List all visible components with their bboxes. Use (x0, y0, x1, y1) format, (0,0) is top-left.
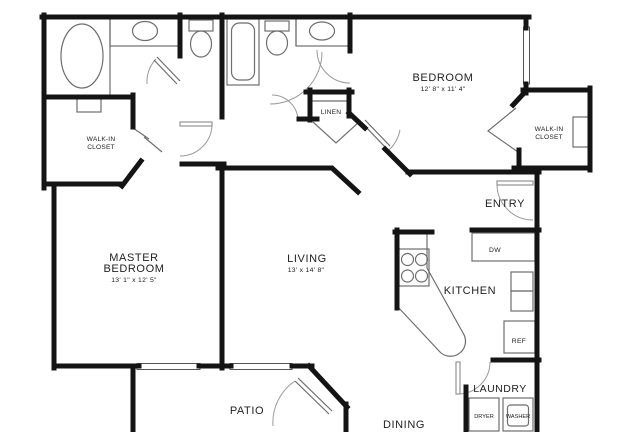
master-bath-door-arc (147, 59, 156, 84)
bathroom-fixtures (61, 17, 350, 95)
entry-label: ENTRY (485, 198, 525, 210)
living-label: LIVING (287, 253, 327, 265)
bedroom-door-panel (362, 120, 390, 149)
bedroom-dims: 12' 8" x 11' 4" (420, 86, 465, 93)
patio-window (137, 364, 200, 370)
master-bedroom-door-arc (180, 124, 212, 156)
oven-icon (511, 291, 533, 311)
refrigerator-icon (504, 321, 535, 353)
walk-in-closet-right-label: WALK-IN (535, 126, 564, 133)
floor-plan-drawing: WALK-IN CLOSET BEDROOM 12' 8" x 11' 4" W… (0, 0, 640, 432)
kitchen-label: KITCHEN (444, 285, 496, 297)
master-bedroom-label: BEDROOM (103, 263, 164, 275)
bedroom-hall-wall (385, 149, 539, 174)
hall-arc (272, 95, 298, 121)
bath1-sink-icon (133, 22, 158, 41)
oven-icon (511, 272, 533, 291)
refrigerator-label: REF (512, 338, 527, 345)
bath2-tub-inner (232, 23, 255, 80)
dining-label: DINING (383, 419, 425, 431)
living-dims: 13' x 14' 8" (288, 267, 325, 274)
master-bedroom-dims: 13' 1" x 12' 5" (111, 277, 157, 284)
bath2-toilet-bowl-icon (267, 31, 288, 55)
burner-icon (416, 254, 428, 266)
bathtub-oval-icon (61, 24, 103, 88)
patio-label: PATIO (230, 405, 264, 417)
dishwasher-counter (472, 233, 535, 261)
entry-door-panel (497, 181, 533, 185)
master-bedroom-door-panel (180, 122, 212, 126)
walk-in-closet-left-label: CLOSET (87, 144, 115, 151)
bath1-toilet-bowl-icon (191, 31, 212, 57)
linen-label: LINEN (321, 109, 341, 116)
bath2-sink-icon (310, 22, 335, 40)
door-arcs (147, 50, 533, 426)
bedroom-label: BEDROOM (412, 72, 473, 84)
master-living-divider-wall (182, 164, 224, 368)
floor-plan: WALK-IN CLOSET BEDROOM 12' 8" x 11' 4" W… (0, 0, 640, 432)
patio-walls (133, 366, 347, 432)
burner-icon (416, 270, 428, 282)
laundry-door-panel (456, 362, 460, 394)
living-hall-wall (218, 168, 358, 192)
patio-window (230, 364, 292, 370)
closet-right-bifold-doors (488, 108, 518, 152)
laundry-label: LAUNDRY (473, 383, 527, 395)
burner-icon (402, 254, 414, 266)
closet-left-bifold-doors (133, 128, 162, 152)
room-labels: WALK-IN CLOSET BEDROOM 12' 8" x 11' 4" W… (87, 72, 564, 431)
bedroom-door-arc (389, 130, 400, 150)
bedroom-window (524, 27, 530, 84)
master-bath-door-panel (154, 57, 180, 84)
hall-bath-door-arc (270, 52, 322, 104)
patio-door-arc (273, 381, 295, 426)
master-bedroom-walls (54, 184, 139, 368)
burner-icon (402, 270, 414, 282)
bath2-toilet-tank-icon (265, 21, 289, 31)
walk-in-closet-right-label: CLOSET (535, 134, 563, 141)
linen-bifold-doors (313, 122, 359, 143)
washer-label: WASHER (506, 414, 530, 420)
dryer-label: DRYER (474, 414, 493, 420)
closet-right-shelf (573, 117, 590, 147)
bath1-toilet-tank-icon (189, 20, 213, 31)
dishwasher-label: DW (489, 247, 501, 254)
walk-in-closet-left-label: WALK-IN (87, 136, 116, 143)
